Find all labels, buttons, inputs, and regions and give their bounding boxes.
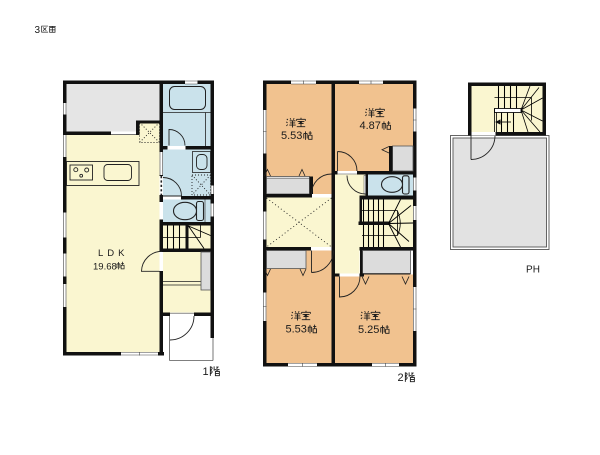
svg-text:19.68: 19.68 xyxy=(93,261,117,272)
svg-text:1: 1 xyxy=(203,366,209,378)
svg-text:5.25: 5.25 xyxy=(358,324,379,336)
svg-text:LDK: LDK xyxy=(98,248,128,259)
svg-text:4.87: 4.87 xyxy=(360,120,381,132)
svg-text:PH: PH xyxy=(526,265,540,276)
svg-text:5.53: 5.53 xyxy=(281,130,302,142)
svg-text:5.53: 5.53 xyxy=(286,324,307,336)
svg-text:2: 2 xyxy=(398,372,404,384)
svg-text:3: 3 xyxy=(35,25,41,36)
